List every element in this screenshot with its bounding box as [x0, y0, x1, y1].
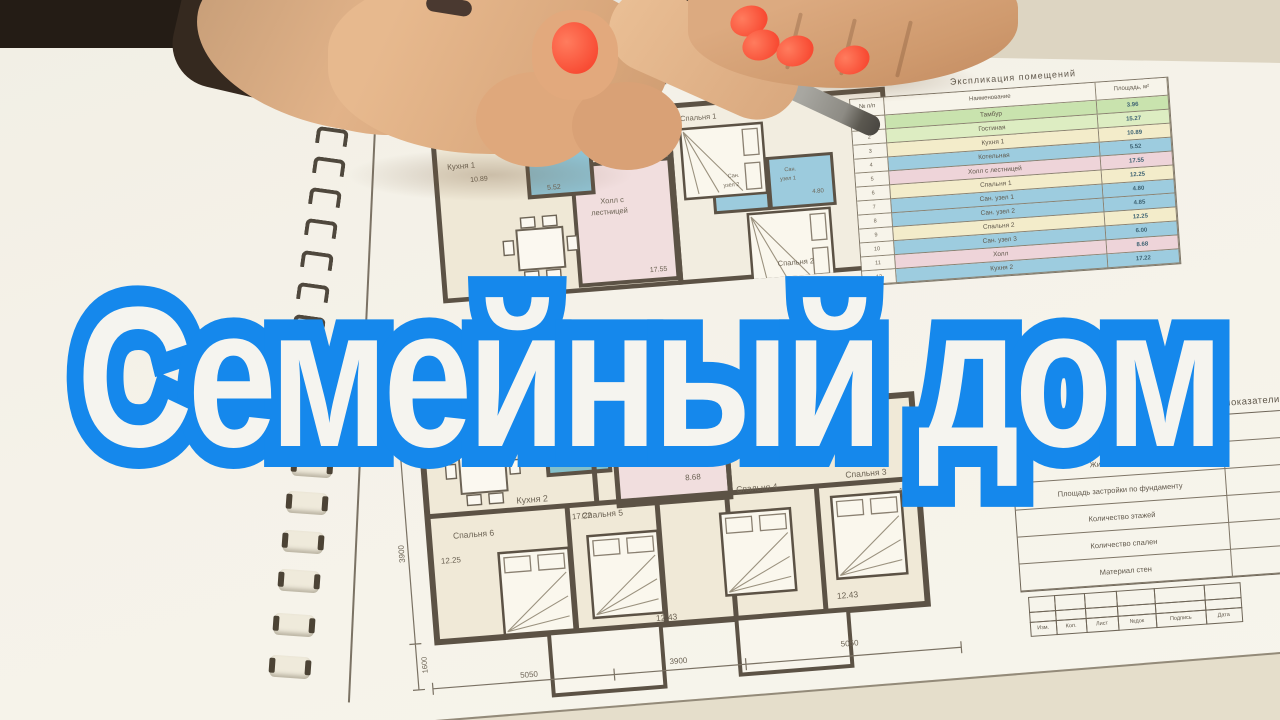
dimension: 5050 — [840, 638, 859, 648]
stamp-label: Дата — [1205, 607, 1243, 625]
title-text-wrap: Семейный дом Семейный дом — [77, 278, 1219, 478]
room-label: узел 1 — [780, 175, 796, 182]
dimension: 5050 — [520, 670, 539, 680]
bed-icon — [499, 548, 575, 635]
room-label: Сан. — [784, 166, 797, 173]
bed-icon — [720, 508, 796, 595]
stamp-label: №док — [1117, 613, 1157, 631]
bed-icon — [831, 491, 907, 578]
indicator-value: 215.63 — [1222, 405, 1280, 442]
room-area: 12.43 — [656, 611, 678, 623]
thumbnail-scene: План первого этажа Кухня 1 10.89 5.52 Хо… — [0, 0, 1280, 720]
room-area: 12.25 — [441, 555, 462, 566]
plan2-porch — [549, 625, 666, 696]
stamp-label: Изм. — [1029, 620, 1057, 637]
bed-icon — [587, 531, 663, 618]
plan2-porch — [736, 610, 852, 675]
right-hand — [688, 0, 1018, 88]
stamp-label: Лист — [1085, 615, 1119, 632]
dimension: 3900 — [397, 544, 407, 563]
spiral-coil — [273, 613, 314, 638]
dimension: 3900 — [669, 656, 688, 666]
spiral-coil — [286, 491, 327, 516]
spiral-coil — [278, 569, 319, 594]
stamp-label: Кол. — [1055, 617, 1087, 634]
dimension: 1600 — [419, 656, 429, 673]
spiral-coil — [269, 655, 310, 680]
title-text: Семейный дом — [77, 266, 1219, 489]
spiral-coil — [282, 530, 323, 555]
room-area: 4.80 — [812, 188, 825, 195]
room-area: 12.43 — [836, 589, 858, 601]
